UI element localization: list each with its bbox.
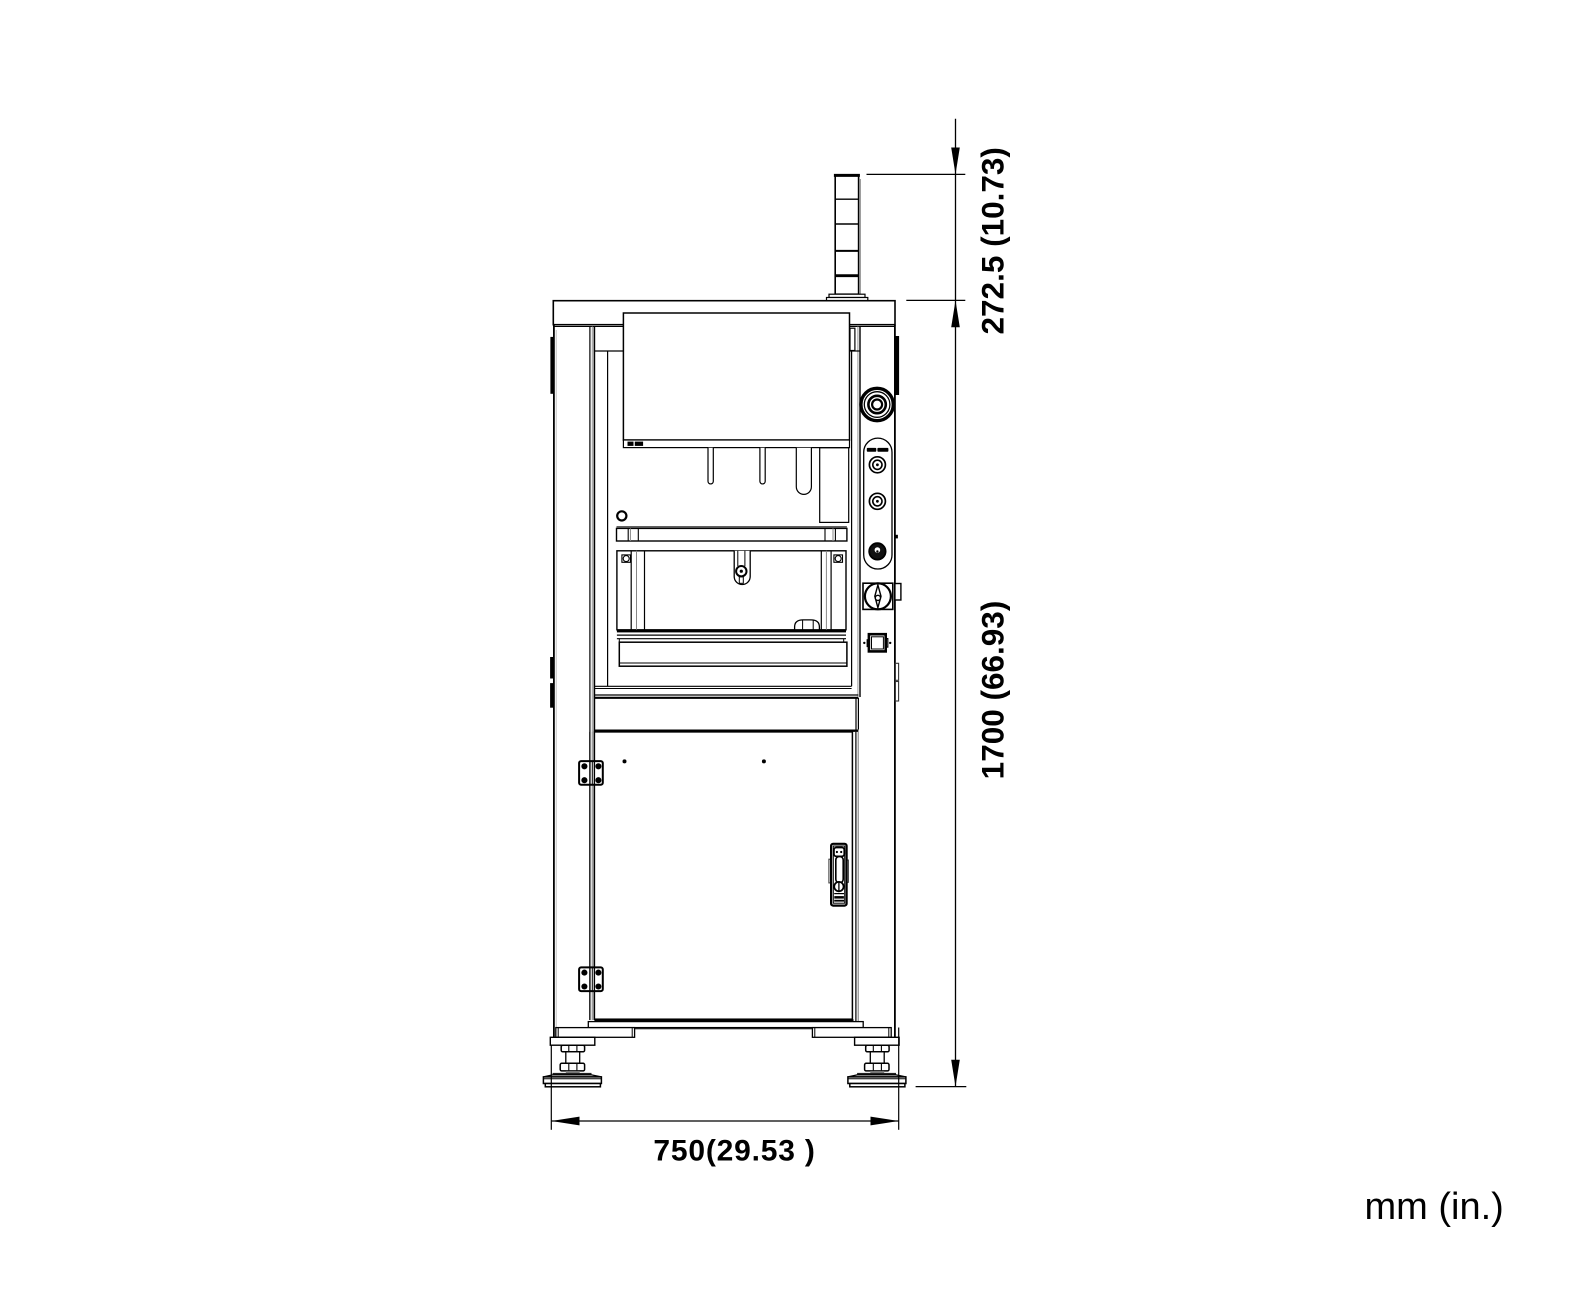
svg-text:1700 (66.93): 1700 (66.93) [975, 601, 1011, 780]
svg-text:750(29.53 ): 750(29.53 ) [653, 1135, 815, 1168]
svg-text:mm (in.): mm (in.) [1365, 1186, 1504, 1228]
svg-text:272.5 (10.73): 272.5 (10.73) [975, 147, 1011, 334]
